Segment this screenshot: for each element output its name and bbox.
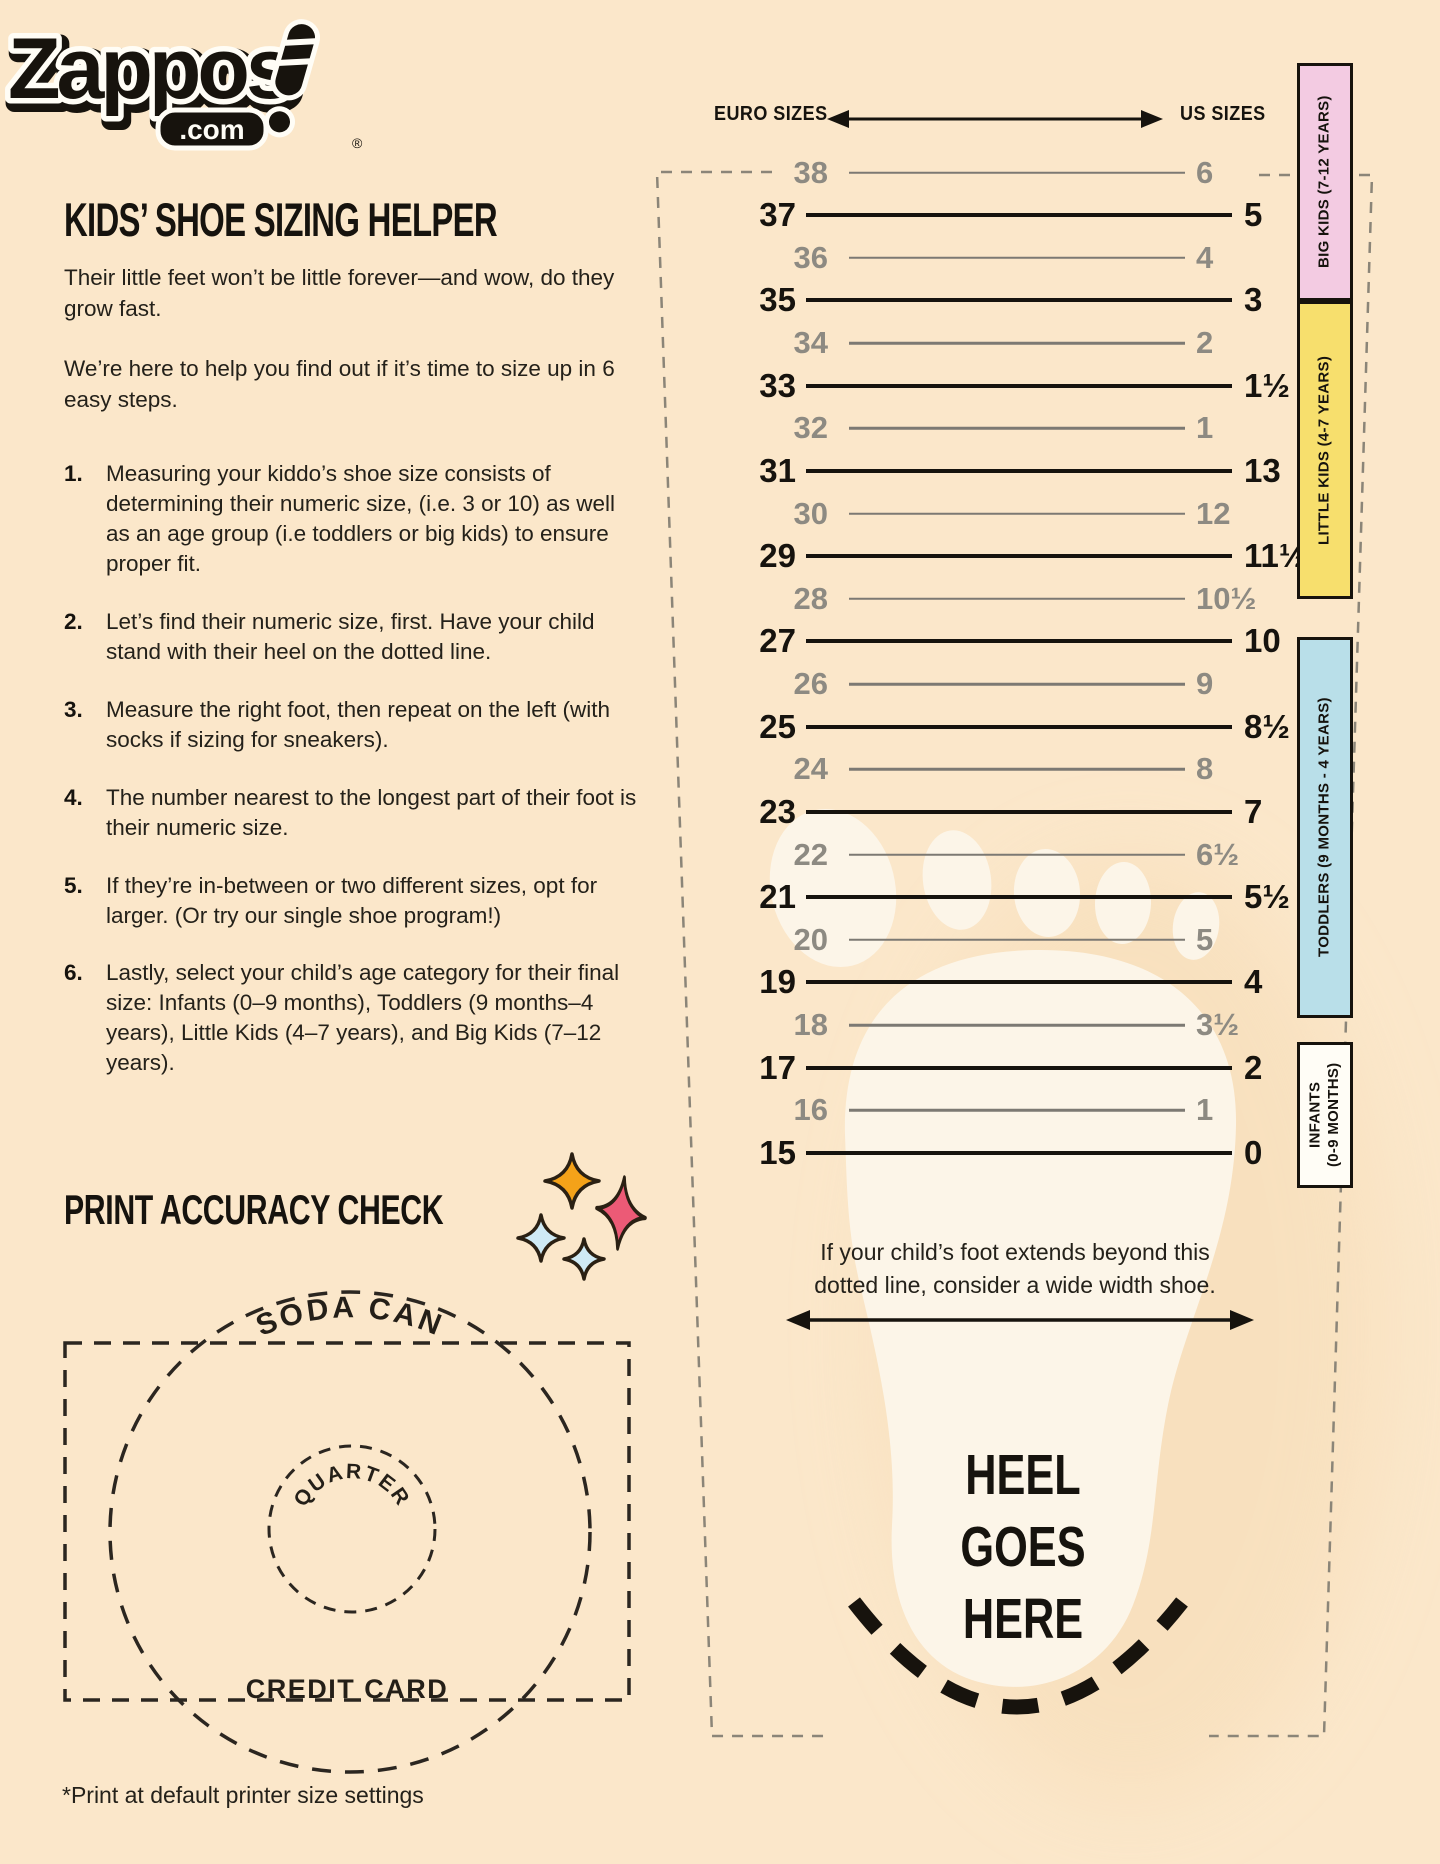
step-number: 1. [64,459,106,579]
wide-width-note: If your child’s foot extends beyond this… [780,1236,1250,1303]
step-text: Let’s find their numeric size, first. Ha… [106,607,595,667]
heel-goes-here-label: HEEL GOES HERE [951,1440,1095,1655]
step-number: 4. [64,783,106,843]
age-band-label: LITTLE KIDS (4-7 YEARS) [1300,304,1350,596]
age-band-label: BIG KIDS (7-12 YEARS) [1300,66,1350,298]
step-item: 1.Measuring your kiddo’s shoe size consi… [64,459,654,579]
step-item: 2.Let’s find their numeric size, first. … [64,607,654,667]
step-item: 6.Lastly, select your child’s age catego… [64,958,654,1078]
step-text: If they’re in-between or two different s… [106,871,597,931]
band-infants: INFANTS (0-9 MONTHS) [1297,1042,1353,1188]
step-text: The number nearest to the longest part o… [106,783,636,843]
step-text: Measure the right foot, then repeat on t… [106,695,610,755]
instructions-column: KIDS’ SHOE SIZING HELPER Their little fe… [64,196,654,1106]
step-item: 4.The number nearest to the longest part… [64,783,654,843]
step-item: 5.If they’re in-between or two different… [64,871,654,931]
step-text: Lastly, select your child’s age category… [106,958,619,1078]
steps-list: 1.Measuring your kiddo’s shoe size consi… [64,459,654,1078]
band-big-kids: BIG KIDS (7-12 YEARS) [1297,63,1353,301]
step-number: 5. [64,871,106,931]
us-sizes-header: US SIZES [1180,103,1266,126]
band-little-kids: LITTLE KIDS (4-7 YEARS) [1297,301,1353,599]
euro-sizes-header: EURO SIZES [714,103,828,126]
age-band-label: INFANTS (0-9 MONTHS) [1300,1045,1350,1185]
intro-paragraph-1: Their little feet won’t be little foreve… [64,263,654,324]
print-accuracy-heading: PRINT ACCURACY CHECK [64,1186,443,1234]
step-item: 3.Measure the right foot, then repeat on… [64,695,654,755]
band-toddlers: TODDLERS (9 MONTHS - 4 YEARS) [1297,637,1353,1018]
age-band-label: TODDLERS (9 MONTHS - 4 YEARS) [1300,640,1350,1015]
step-text: Measuring your kiddo’s shoe size consist… [106,459,615,579]
step-number: 3. [64,695,106,755]
sizing-helper-page: SODA CAN QUARTER CREDIT CARD Zappos Zapp… [0,0,1440,1864]
step-number: 6. [64,958,106,1078]
page-title: KIDS’ SHOE SIZING HELPER [64,196,477,243]
intro-paragraph-2: We’re here to help you find out if it’s … [64,354,654,415]
step-number: 2. [64,607,106,667]
print-settings-footnote: *Print at default printer size settings [62,1782,424,1809]
